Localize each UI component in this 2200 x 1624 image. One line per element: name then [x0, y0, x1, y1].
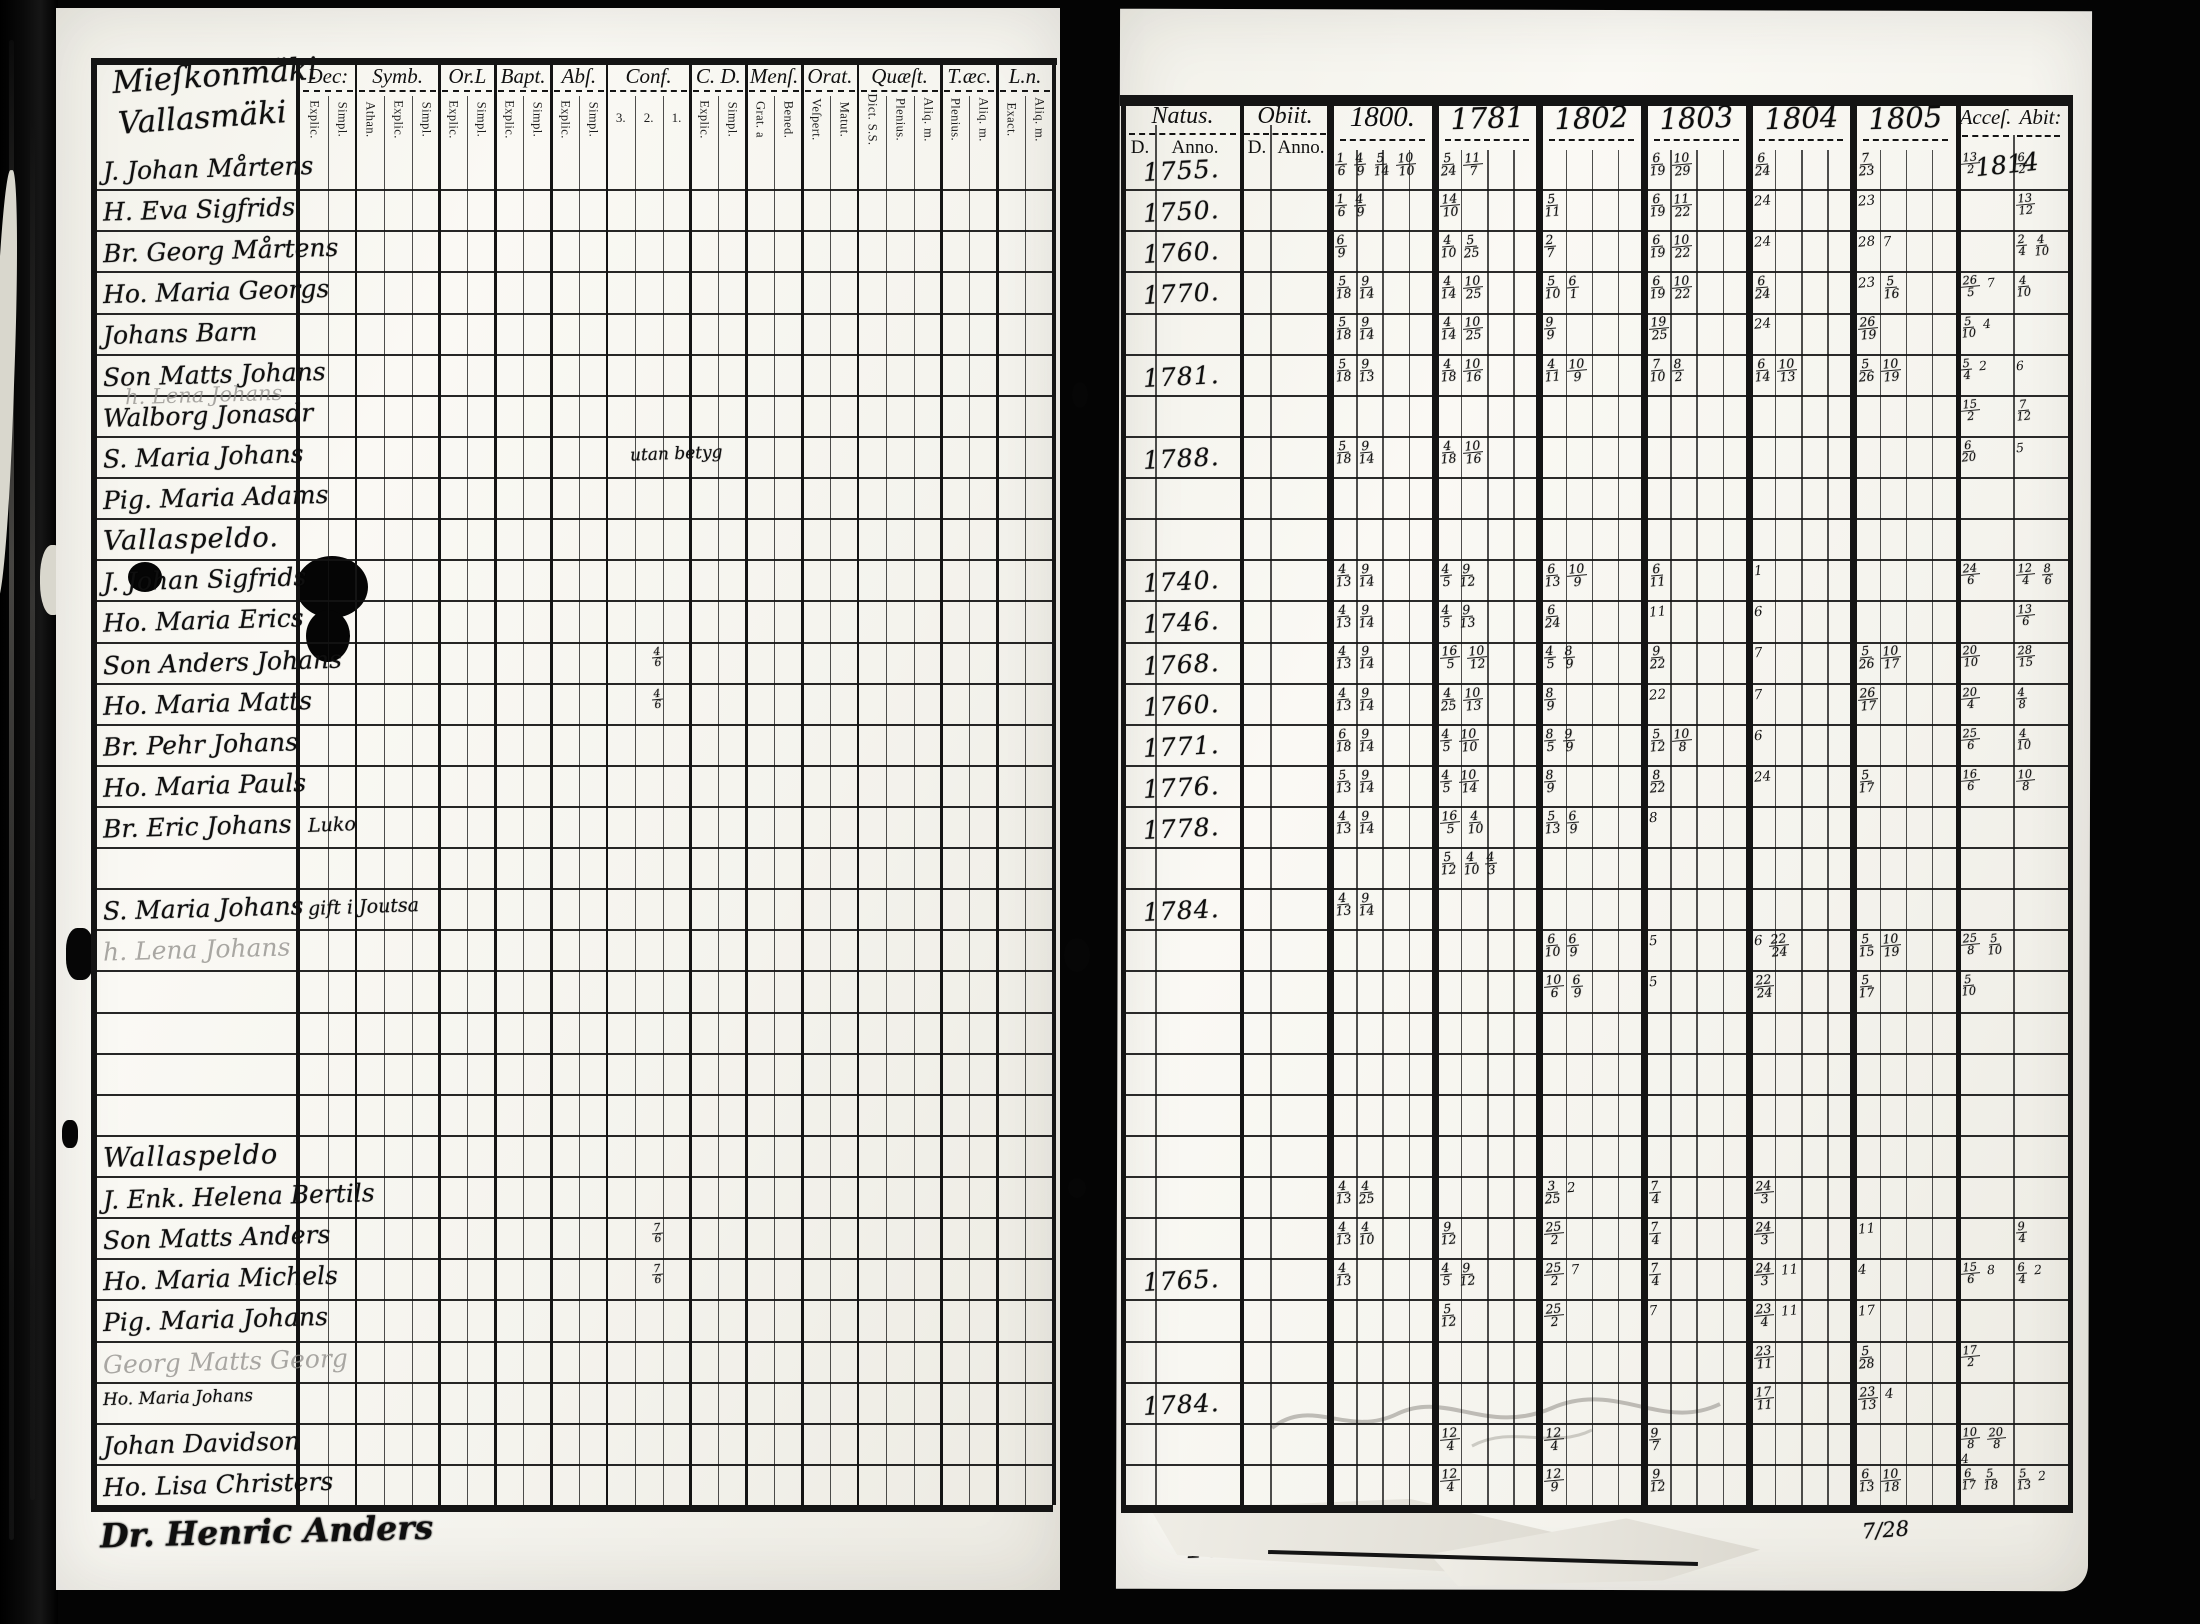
- date-fraction: 410: [1439, 234, 1457, 259]
- year-label: 1803: [1643, 99, 1749, 137]
- subcolumn-divider: [328, 96, 329, 1505]
- acces-cell: 1082084: [1961, 1427, 2011, 1466]
- date-fraction: 1019: [1880, 932, 1902, 958]
- date-fraction: 49: [1353, 193, 1367, 218]
- date-mark: 11: [1858, 1220, 1877, 1237]
- date-fraction: 82: [1671, 357, 1685, 382]
- communion-dates-cell: 518914: [1335, 316, 1432, 340]
- date-fraction: 2815: [2015, 645, 2036, 669]
- date-fraction: 1016: [1462, 439, 1484, 465]
- date-fraction: 265: [1960, 275, 1981, 299]
- date-fraction: 165: [1439, 809, 1461, 835]
- communion-dates-cell: 6131018: [1858, 1468, 1955, 1492]
- communion-dates-cell: 7: [1754, 645, 1851, 661]
- row-rule: [95, 1217, 1053, 1219]
- row-rule: [95, 1258, 1053, 1260]
- date-fraction: 45: [1439, 727, 1453, 752]
- natus-year: 1771.: [1142, 730, 1220, 763]
- abit-cell: 6: [2016, 358, 2066, 373]
- date-fraction: 74: [1648, 1262, 1662, 1287]
- date-fraction: 46: [651, 647, 664, 669]
- footer-mark: 7/28: [1861, 1516, 1910, 1543]
- row-rule: [95, 600, 1053, 602]
- year-label: 1781: [1434, 99, 1540, 137]
- date-mark: 11: [1648, 604, 1667, 621]
- date-fraction: 914: [1357, 809, 1375, 834]
- date-fraction: 16: [1334, 152, 1348, 177]
- row-rule: [95, 970, 1053, 972]
- date-fraction: 1012: [1466, 645, 1488, 671]
- year-label: 1800.: [1330, 101, 1435, 134]
- abit-cell: 2815: [2016, 645, 2066, 667]
- row-rule: [95, 1012, 1053, 1014]
- subcolumn-label: Aliq. m.: [976, 85, 991, 155]
- date-fraction: 524: [1439, 151, 1457, 176]
- row-rule: [1125, 559, 2068, 561]
- row-rule: [1125, 395, 2068, 397]
- date-fraction: 914: [1357, 686, 1375, 711]
- resident-name: Br. Eric Johans: [103, 809, 292, 843]
- communion-dates-cell: 6191022: [1649, 234, 1746, 258]
- abit-cell: 5: [2016, 440, 2066, 455]
- row-rule: [1125, 436, 2068, 438]
- row-rule: [1125, 1135, 2068, 1137]
- gutter-smudge: [1068, 1178, 1086, 1198]
- conf-mark: 46: [652, 647, 692, 668]
- communion-dates-cell: 411109: [1544, 358, 1641, 382]
- communion-dates-cell: 5: [1649, 974, 1746, 990]
- row-rule: [1125, 806, 2068, 808]
- communion-dates-cell: 624: [1754, 275, 1851, 299]
- column-group-border: [438, 58, 441, 1505]
- communion-dates-cell: 62224: [1754, 933, 1851, 957]
- date-fraction: 2311: [1753, 1344, 1775, 1370]
- date-mark: 6: [1753, 604, 1763, 621]
- date-mark: 7: [1753, 686, 1763, 703]
- acces-cell: 132: [1961, 152, 2011, 174]
- communion-dates-cell: 4181016: [1440, 440, 1537, 464]
- date-fraction: 410: [2015, 727, 2032, 750]
- date-fraction: 914: [1357, 645, 1375, 670]
- date-fraction: 243: [1753, 1261, 1775, 1287]
- communion-dates-cell: 1925: [1649, 316, 1746, 340]
- date-fraction: 1014: [1458, 768, 1480, 794]
- date-fraction: 208: [1986, 1426, 2007, 1450]
- subcolumn-label: Explic.: [697, 85, 712, 155]
- communion-dates-cell: 51241043: [1440, 851, 1537, 875]
- communion-dates-cell: 5261019: [1858, 358, 1955, 382]
- row-rule: [1125, 477, 2068, 479]
- subcolumn-divider: [969, 96, 970, 1505]
- date-fraction: 74: [1648, 1221, 1662, 1246]
- date-fraction: 89: [1543, 768, 1557, 793]
- communion-dates-cell: 124: [1544, 1427, 1641, 1451]
- communion-dates-cell: 24: [1754, 769, 1851, 785]
- year-column-border: [1641, 95, 1648, 1505]
- date-mark: 2: [2034, 1262, 2043, 1278]
- natus-year: 1740.: [1142, 565, 1220, 598]
- date-fraction: 410: [1466, 809, 1484, 834]
- natus-year: 1781.: [1142, 360, 1220, 393]
- date-fraction: 914: [1357, 439, 1375, 464]
- spine-streak: [30, 120, 35, 1500]
- communion-dates-cell: 74: [1649, 1221, 1746, 1245]
- abit-cell: 712: [2016, 399, 2066, 421]
- date-fraction: 1122: [1671, 192, 1693, 218]
- date-fraction: 1016: [1462, 357, 1484, 383]
- row-rule: [95, 1423, 1053, 1425]
- natus-year: 1784.: [1142, 894, 1220, 927]
- row-rule: [95, 1176, 1053, 1178]
- row-rule: [95, 271, 1053, 273]
- row-rule: [1125, 1094, 2068, 1096]
- row-rule: [1125, 847, 2068, 849]
- subcolumn-label: Explic.: [557, 85, 572, 155]
- resident-name: Georg Matts Georg: [103, 1343, 349, 1379]
- date-mark: 1: [1753, 563, 1763, 580]
- communion-dates-cell: 51369: [1544, 810, 1641, 834]
- date-fraction: 410: [1357, 1220, 1375, 1245]
- communion-dates-cell: 517: [1858, 974, 1955, 998]
- row-rule: [1125, 1505, 2068, 1507]
- communion-dates-cell: 45912: [1440, 1262, 1537, 1286]
- obiit-header: Obiit.: [1240, 103, 1330, 130]
- date-fraction: 45: [1439, 768, 1453, 793]
- date-mark: 24: [1753, 316, 1772, 333]
- communion-dates-cell: 2619: [1858, 316, 1955, 340]
- communion-dates-cell: 1711: [1754, 1386, 1851, 1410]
- date-mark: 4: [1982, 316, 1991, 332]
- subcolumn-label: Explic.: [306, 85, 321, 155]
- communion-dates-cell: 413914: [1335, 892, 1432, 916]
- date-fraction: 511: [1543, 192, 1561, 217]
- date-mark: 28: [1858, 234, 1877, 251]
- acces-cell: 620: [1961, 440, 2011, 462]
- margin-smudge: [62, 1120, 78, 1148]
- row-rule: [95, 888, 1053, 890]
- row-rule: [95, 559, 1053, 561]
- row-rule: [1125, 724, 2068, 726]
- column-group-border: [940, 58, 943, 1505]
- communion-dates-cell: 124: [1440, 1468, 1537, 1492]
- subcolumn-label: Explic.: [502, 85, 517, 155]
- subcolumn-divider: [467, 96, 468, 1505]
- obiit-d-anno-divider: [1270, 125, 1272, 1505]
- date-fraction: 413: [1334, 1220, 1352, 1245]
- date-mark: 8: [1648, 810, 1658, 827]
- gutter-smudge: [1072, 382, 1088, 408]
- row-rule: [95, 189, 1053, 191]
- date-fraction: 1410: [1439, 192, 1461, 218]
- communion-dates-cell: 243: [1754, 1221, 1851, 1245]
- natus-year: 1760.: [1142, 236, 1220, 269]
- subcolumn-label: Bened.: [781, 85, 796, 155]
- scanned-parish-register: Mieſkonmäki Vallasmäki Dr. Henric Anders…: [0, 0, 2200, 1624]
- communion-dates-cell: 4: [1858, 1262, 1955, 1278]
- abit-cell: 108: [2016, 769, 2066, 791]
- row-rule: [95, 1505, 1053, 1507]
- row-rule: [95, 847, 1053, 849]
- row-rule: [1125, 313, 2068, 315]
- acces-underline: [1962, 135, 2009, 137]
- natus-underline: [1129, 133, 1236, 135]
- date-fraction: 513: [2015, 1467, 2032, 1490]
- subcolumn-divider: [718, 96, 719, 1505]
- date-mark: 24: [1753, 234, 1772, 251]
- row-rule: [1125, 1299, 2068, 1301]
- communion-dates-cell: 413914: [1335, 645, 1432, 669]
- year-underline: [1340, 139, 1425, 141]
- date-mark: 7: [1648, 1303, 1658, 1320]
- subcolumn-label: Simpl.: [334, 85, 349, 155]
- natus-year: 1755.: [1142, 154, 1220, 187]
- date-fraction: 610: [1543, 933, 1561, 958]
- communion-dates-cell: 6191122: [1649, 193, 1746, 217]
- date-fraction: 117: [1462, 151, 1484, 177]
- acces-cell: 152: [1961, 399, 2011, 421]
- communion-dates-cell: 413: [1335, 1262, 1432, 1286]
- communion-dates-cell: 1651012: [1440, 645, 1537, 669]
- date-fraction: 512: [1648, 727, 1666, 752]
- communion-dates-cell: 71082: [1649, 358, 1746, 382]
- column-group-label: Conf.: [607, 64, 691, 89]
- row-rule: [95, 1341, 1053, 1343]
- natus-year: 1760.: [1142, 689, 1220, 722]
- subcolumn-divider: [579, 96, 580, 1505]
- column-group-border: [1052, 58, 1055, 1505]
- date-mark: 6: [2015, 357, 2024, 373]
- communion-dates-cell: 4181016: [1440, 358, 1537, 382]
- date-fraction: 76: [651, 1223, 664, 1245]
- row-rule: [95, 1382, 1053, 1384]
- communion-dates-cell: 410525: [1440, 234, 1537, 258]
- date-mark: 8: [1986, 1262, 1995, 1278]
- date-fraction: 106: [1543, 974, 1565, 1000]
- conf-mark: 76: [652, 1223, 692, 1244]
- subcolumn-label: Explic.: [446, 85, 461, 155]
- date-fraction: 48: [2015, 686, 2028, 709]
- row-rule: [1125, 230, 2068, 232]
- date-fraction: 49: [1353, 152, 1367, 177]
- resident-name: Ho. Maria Pauls: [103, 768, 307, 803]
- date-fraction: 526: [1857, 357, 1875, 382]
- column-group-border: [606, 58, 609, 1505]
- date-fraction: 252: [1543, 1220, 1565, 1246]
- abit-cell: 1312: [2016, 193, 2066, 215]
- date-fraction: 518: [1334, 439, 1352, 464]
- communion-dates-cell: 2617: [1858, 687, 1955, 711]
- row-rule: [1125, 354, 2068, 356]
- date-fraction: 45: [1439, 563, 1453, 588]
- communion-dates-cell: 624: [1754, 152, 1851, 176]
- date-fraction: 613: [1543, 563, 1561, 588]
- communion-dates-cell: 511: [1544, 193, 1641, 217]
- communion-dates-cell: 165410: [1440, 810, 1537, 834]
- date-fraction: 109: [1566, 562, 1588, 588]
- subcolumn-label: 2.: [635, 110, 663, 126]
- date-fraction: 513: [1334, 768, 1352, 793]
- abit-cell: 94: [2016, 1221, 2066, 1243]
- date-fraction: 510: [1543, 275, 1561, 300]
- date-fraction: 510: [1960, 974, 1977, 997]
- date-fraction: 414: [1439, 316, 1457, 341]
- date-fraction: 710: [1648, 357, 1666, 382]
- date-fraction: 914: [1357, 563, 1375, 588]
- communion-dates-cell: 922: [1649, 645, 1746, 669]
- communion-dates-cell: 524117: [1440, 152, 1537, 176]
- year-column-border: [1536, 95, 1543, 1505]
- abit-cell: 136: [2016, 604, 2066, 626]
- row-rule: [1125, 1464, 2068, 1466]
- acces-cell: 204: [1961, 687, 2011, 709]
- communion-dates-cell: 252: [1544, 1221, 1641, 1245]
- row-rule: [1125, 1341, 2068, 1343]
- date-fraction: 413: [1334, 1262, 1352, 1287]
- date-fraction: 89: [1562, 645, 1576, 670]
- obiit-anno-label: Anno.: [1266, 137, 1336, 159]
- row-rule: [1125, 271, 2068, 273]
- date-fraction: 43: [1484, 851, 1498, 876]
- date-fraction: 912: [1439, 1220, 1457, 1245]
- date-fraction: 76: [651, 1264, 664, 1286]
- year-underline: [1654, 139, 1739, 141]
- date-fraction: 414: [1439, 275, 1457, 300]
- date-fraction: 624: [1543, 604, 1561, 629]
- date-fraction: 1312: [2015, 192, 2036, 216]
- communion-dates-cell: 6191029: [1649, 152, 1746, 176]
- year-label: 1804: [1748, 99, 1854, 137]
- resident-name: Ho. Maria Johans: [103, 1386, 254, 1410]
- date-fraction: 822: [1648, 768, 1666, 793]
- date-mark: 7: [1882, 234, 1892, 251]
- date-mark: 4: [1858, 1262, 1868, 1279]
- acces-cell: 166: [1961, 769, 2011, 791]
- natus-year: 1750.: [1142, 195, 1220, 228]
- date-fraction: 624: [1753, 275, 1771, 300]
- date-fraction: 413: [1334, 809, 1352, 834]
- date-fraction: 124: [1439, 1426, 1461, 1452]
- column-group-border: [689, 58, 692, 1505]
- communion-dates-cell: 7: [1754, 687, 1851, 703]
- date-fraction: 2224: [1753, 974, 1775, 1000]
- communion-dates-cell: 23411: [1754, 1303, 1851, 1327]
- year-label: 1802: [1539, 99, 1645, 137]
- communion-dates-cell: 5151019: [1858, 933, 1955, 957]
- date-fraction: 914: [1357, 727, 1375, 752]
- date-fraction: 166: [1960, 768, 1981, 792]
- gutter-smudge: [1064, 938, 1090, 972]
- resident-name: Johan Davidson: [103, 1426, 301, 1460]
- abit-cell: 642: [2016, 1262, 2066, 1284]
- subcolumn-label: Aliq. m.: [920, 85, 935, 155]
- communion-dates-cell: 517: [1858, 769, 1955, 793]
- date-fraction: 46: [651, 688, 664, 710]
- communion-dates-cell: 99: [1544, 316, 1641, 340]
- row-rule: [1125, 1382, 2068, 1384]
- date-fraction: 618: [1334, 727, 1352, 752]
- date-fraction: 256: [1960, 727, 1981, 751]
- date-fraction: 518: [1334, 275, 1352, 300]
- row-rule: [95, 765, 1053, 767]
- village-heading: Wallaspeldo: [103, 1139, 279, 1174]
- natus-year: 1776.: [1142, 771, 1220, 804]
- date-fraction: 510: [1986, 933, 2003, 956]
- communion-dates-cell: 3252: [1544, 1180, 1641, 1204]
- row-rule: [95, 354, 1053, 356]
- date-fraction: 24: [2015, 234, 2028, 257]
- date-fraction: 912: [1648, 1467, 1666, 1492]
- date-fraction: 1025: [1462, 275, 1484, 301]
- date-fraction: 413: [1334, 604, 1352, 629]
- center-note: utan betyg: [630, 442, 723, 465]
- date-mark: 11: [1780, 1262, 1799, 1279]
- date-fraction: 64: [2015, 1262, 2028, 1285]
- obiit-column-border: [1240, 95, 1244, 1505]
- date-fraction: 325: [1543, 1179, 1561, 1204]
- abit-underline: [2017, 135, 2060, 137]
- date-mark: 4: [1885, 1385, 1895, 1402]
- date-fraction: 172: [1960, 1344, 1981, 1368]
- date-fraction: 914: [1357, 316, 1375, 341]
- date-fraction: 510: [1960, 316, 1977, 339]
- abit-cell: 12486: [2016, 563, 2066, 585]
- abit-cell: 48: [2016, 687, 2066, 709]
- year-column-border: [1432, 95, 1439, 1505]
- column-group-border: [745, 58, 748, 1505]
- communion-dates-cell: 5: [1649, 933, 1746, 949]
- date-mark: 24: [1753, 768, 1772, 785]
- date-fraction: 234: [1753, 1303, 1775, 1329]
- date-fraction: 136: [2015, 604, 2036, 628]
- communion-dates-cell: 74: [1649, 1262, 1746, 1286]
- date-fraction: 425: [1439, 686, 1457, 711]
- date-fraction: 525: [1462, 234, 1480, 259]
- date-fraction: 614: [1753, 357, 1771, 382]
- date-fraction: 69: [1566, 933, 1580, 958]
- date-mark: 11: [1780, 1303, 1799, 1320]
- column-group-border: [996, 58, 999, 1505]
- date-mark: 23: [1858, 275, 1877, 292]
- subcolumn-label: 3.: [607, 110, 635, 126]
- subcolumn-label: 1.: [663, 110, 691, 126]
- communion-dates-cell: 7: [1649, 1303, 1746, 1319]
- date-fraction: 258: [1960, 933, 1981, 957]
- date-mark: 6: [1753, 933, 1763, 950]
- date-fraction: 89: [1543, 686, 1557, 711]
- communion-dates-cell: 413914: [1335, 687, 1432, 711]
- date-fraction: 54: [1960, 357, 1973, 380]
- acces-cell: 5104: [1961, 316, 2011, 338]
- communion-dates-cell: 512: [1440, 1303, 1537, 1327]
- year-column-border: [1746, 95, 1753, 1505]
- row-rule: [1125, 970, 2068, 972]
- date-fraction: 74: [1648, 1180, 1662, 1205]
- communion-dates-cell: 518914: [1335, 440, 1432, 464]
- natus-year: 1765.: [1142, 1264, 1220, 1297]
- communion-dates-cell: 89: [1544, 687, 1641, 711]
- date-fraction: 914: [1357, 275, 1375, 300]
- date-mark: 5: [1648, 933, 1658, 950]
- date-fraction: 152: [1960, 398, 1981, 422]
- communion-dates-cell: 513914: [1335, 769, 1432, 793]
- row-rule: [1125, 1176, 2068, 1178]
- date-fraction: 2619: [1857, 316, 1879, 342]
- row-rule: [95, 642, 1053, 644]
- date-mark: 22: [1648, 686, 1667, 703]
- date-fraction: 922: [1648, 645, 1666, 670]
- communion-dates-cell: 24: [1754, 316, 1851, 332]
- communion-dates-cell: 528: [1858, 1345, 1955, 1369]
